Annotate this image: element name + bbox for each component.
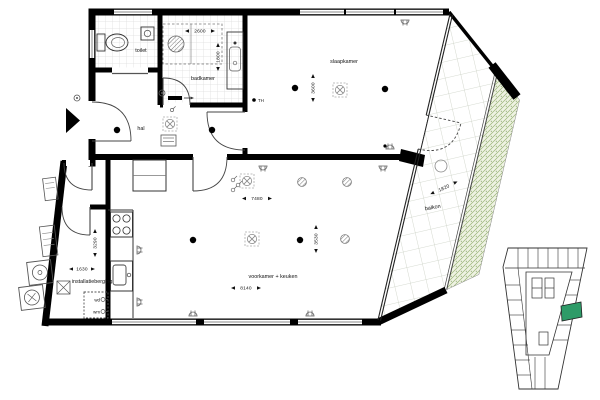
ceiling-points <box>114 85 388 243</box>
meter-cupboard-icon <box>43 177 59 200</box>
tall-cabinet-icon <box>133 160 166 191</box>
socket-icon <box>306 311 315 317</box>
dim-2600: 2600 <box>194 29 206 35</box>
dim-3290: 3290 <box>93 237 99 249</box>
keymap <box>503 248 587 389</box>
ceiling-fixture-icon <box>163 117 177 131</box>
dim-7480: 7480 <box>251 196 263 202</box>
intercom-icon <box>161 135 176 146</box>
ceiling-fixture-icon <box>333 83 347 97</box>
dim-1800: 1800 <box>216 51 222 63</box>
spotlight-icon <box>341 235 350 244</box>
switch-cluster <box>170 106 242 191</box>
room-label-toilet: toilet <box>135 48 147 54</box>
dim-1630: 1630 <box>76 267 88 273</box>
spotlight-icon <box>343 178 352 187</box>
socket-icon <box>386 144 395 150</box>
duct-icon <box>57 281 70 294</box>
livingroom-door <box>193 157 227 191</box>
dryer-icon <box>19 285 46 311</box>
socket-icon <box>137 298 143 307</box>
room-label-berging: installatieberging <box>72 279 112 285</box>
dim-3600: 3600 <box>311 82 317 94</box>
washer-label: wm <box>93 310 100 315</box>
socket-icon <box>379 166 388 172</box>
socket-icon <box>259 166 268 172</box>
room-label-voorkamer: voorkamer + keuken <box>249 274 298 280</box>
socket-icon <box>401 20 410 26</box>
balcony-zone <box>378 13 520 320</box>
ceiling-fixture-icon <box>245 232 259 246</box>
sink-icon <box>111 261 133 291</box>
front-door <box>92 102 131 141</box>
dryer-label: wd <box>94 298 100 303</box>
room-label-badkamer: badkamer <box>191 76 215 82</box>
dim-3530: 3530 <box>314 233 320 245</box>
storage-door <box>62 207 90 235</box>
entrance-arrow-icon <box>66 108 80 133</box>
socket-icon <box>137 246 143 255</box>
thermostat-label: TH <box>258 98 264 103</box>
room-label-slaapkamer: slaapkamer <box>330 59 358 65</box>
dim-8140: 8140 <box>240 286 252 292</box>
spotlight-icon <box>298 178 307 187</box>
floorplan-page: toilet badkamer slaapkamer hal voorkamer… <box>0 0 600 400</box>
cooktop-icon <box>111 212 133 237</box>
hall-nook-door <box>64 163 92 190</box>
doorbell-icon <box>74 95 80 101</box>
room-label-hal: hal <box>137 126 144 132</box>
socket-icon <box>189 311 198 317</box>
ceiling-fixture-icon <box>240 174 254 188</box>
room-labels: toilet badkamer slaapkamer hal voorkamer… <box>72 48 441 285</box>
floor-plan: toilet badkamer slaapkamer hal voorkamer… <box>0 0 600 400</box>
kitchen <box>108 160 166 318</box>
